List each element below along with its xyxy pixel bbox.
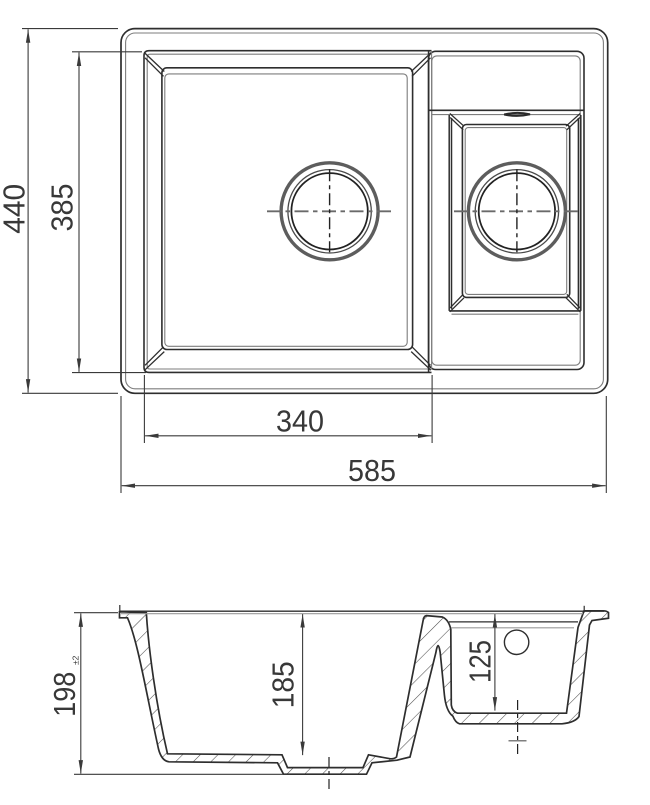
svg-text:385: 385 <box>45 184 80 232</box>
svg-text:440: 440 <box>0 184 32 234</box>
svg-text:±2: ±2 <box>71 655 81 665</box>
svg-text:125: 125 <box>463 640 498 683</box>
svg-text:198: 198 <box>47 672 82 717</box>
svg-text:340: 340 <box>276 404 324 439</box>
svg-text:185: 185 <box>266 661 301 708</box>
svg-text:585: 585 <box>348 453 396 488</box>
